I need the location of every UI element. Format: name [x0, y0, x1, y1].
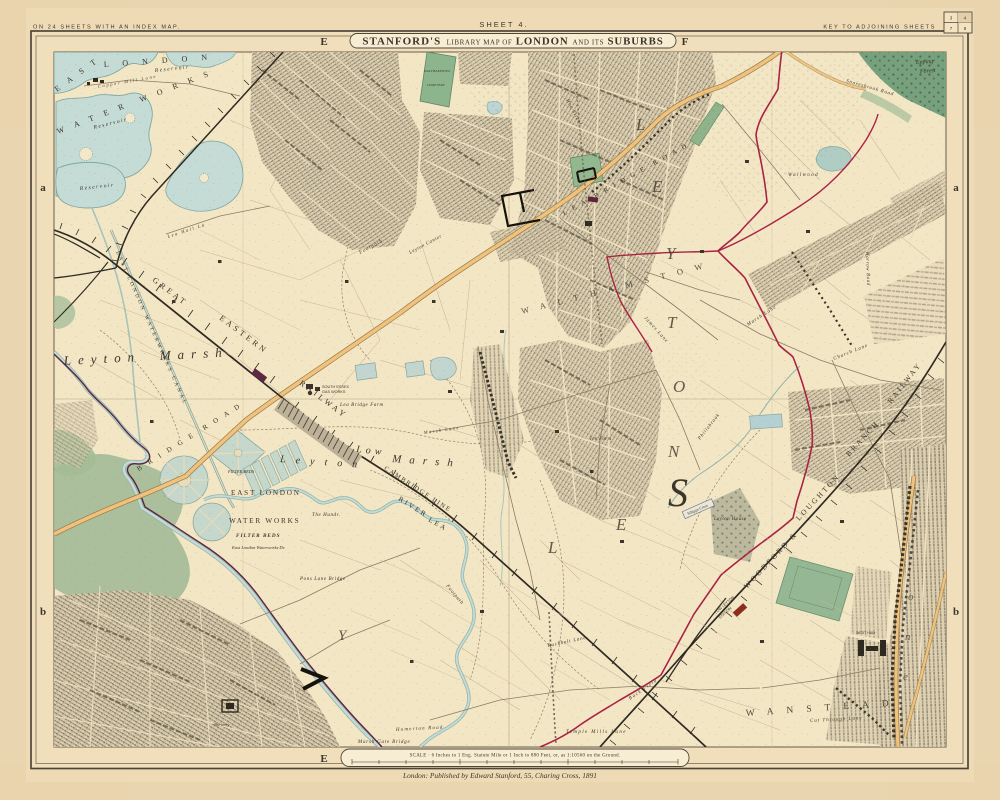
svg-text:b: b [953, 606, 959, 618]
svg-text:EAST LONDON: EAST LONDON [231, 489, 301, 497]
svg-text:a: a [953, 182, 959, 194]
svg-text:KEY TO ADJOINING SHEETS: KEY TO ADJOINING SHEETS [823, 25, 936, 31]
svg-text:E: E [615, 515, 627, 534]
svg-text:Y: Y [666, 244, 677, 263]
svg-text:SCALE · 6 Inches to 1 Eng. Sta: SCALE · 6 Inches to 1 Eng. Statute Mile … [410, 754, 621, 759]
svg-text:SHEET 4.: SHEET 4. [479, 20, 528, 29]
svg-text:Marsh Gate Bridge: Marsh Gate Bridge [357, 740, 410, 745]
svg-text:Ice Farm: Ice Farm [589, 437, 612, 442]
svg-text:O: O [673, 377, 685, 396]
svg-text:GAS WORKS: GAS WORKS [322, 390, 346, 394]
svg-text:FILTER BEDS: FILTER BEDS [227, 469, 255, 474]
svg-text:Lea Bridge Farm: Lea Bridge Farm [339, 403, 384, 408]
svg-text:T: T [667, 313, 678, 332]
svg-text:Wallwood: Wallwood [788, 173, 819, 178]
svg-text:WATER WORKS: WATER WORKS [229, 517, 300, 525]
svg-text:E: E [651, 177, 663, 196]
svg-text:FILTER BEDS: FILTER BEDS [236, 533, 281, 539]
svg-text:F: F [682, 36, 689, 48]
svg-text:ON 24 SHEETS WITH AN INDEX MAP: ON 24 SHEETS WITH AN INDEX MAP. [33, 25, 181, 31]
svg-text:London: Published by Edward St: London: Published by Edward Stanford, 55… [402, 771, 597, 780]
svg-text:Pons Lane Bridge: Pons Lane Bridge [299, 577, 346, 582]
svg-text:b: b [40, 606, 46, 618]
svg-text:The Hundr.: The Hundr. [312, 513, 341, 518]
svg-text:Leyton House: Leyton House [713, 517, 747, 522]
svg-text:L: L [547, 538, 557, 557]
svg-text:L: L [635, 115, 645, 134]
svg-text:N: N [667, 442, 681, 461]
svg-text:East London Waterworks Dr.: East London Waterworks Dr. [231, 545, 285, 550]
svg-text:S: S [668, 470, 688, 515]
svg-text:Temple Mills Lane: Temple Mills Lane [566, 730, 627, 735]
svg-text:a: a [40, 182, 46, 194]
svg-text:SOUTH ESSEX: SOUTH ESSEX [322, 385, 349, 389]
svg-text:E: E [320, 753, 327, 765]
svg-text:E: E [320, 36, 327, 48]
